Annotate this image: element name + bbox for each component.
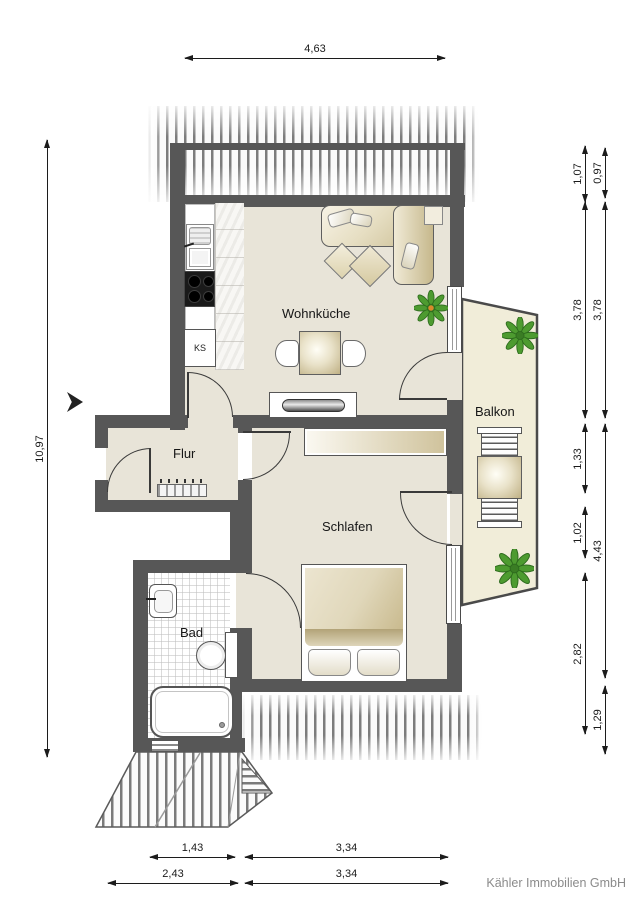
balcony-window-wohnkueche (447, 286, 462, 353)
dining-chair-left (275, 340, 299, 367)
roof-hatch-bottom-left (90, 745, 290, 835)
wall-segment (133, 560, 148, 752)
wohnkueche-balcony-door-leaf (399, 398, 447, 400)
dimension-bottom-outer: 2,43 (108, 871, 238, 887)
balcony-table (477, 456, 522, 499)
room-label-flur: Flur (173, 446, 195, 461)
plant-icon (414, 290, 448, 326)
room-label-bad: Bad (180, 625, 203, 640)
wardrobe (304, 428, 447, 456)
floor-plan: KS Wohnküche Flur Balkon Schlafen Bad (0, 0, 636, 900)
dimension-right-outer: 0,97 (598, 148, 614, 198)
dimension-left: 10,97 (40, 140, 56, 757)
stove-burner (203, 276, 214, 287)
stove-burner (203, 291, 214, 302)
room-label-schlafen: Schlafen (322, 519, 373, 534)
kitchen-tile-strip (215, 203, 244, 370)
balcony-window-schlafen (446, 545, 461, 624)
dimension-bottom-inner: 3,34 (245, 845, 448, 861)
wall-segment (170, 143, 465, 150)
flur-wohnkueche-door-leaf (187, 372, 189, 418)
bed-duvet (305, 568, 403, 629)
dimension-right-outer: 4,43 (598, 424, 614, 678)
entrance-arrow-icon (67, 392, 83, 412)
dining-table (299, 331, 341, 375)
company-name: Kähler Immobilien GmbH (460, 876, 626, 890)
dimension-bottom-inner: 1,43 (150, 845, 235, 861)
toilet-cistern (225, 632, 238, 678)
bed-duvet-fold (305, 629, 403, 646)
dimension-right-outer: 1,29 (598, 686, 614, 754)
flur-radiator-ticks (160, 479, 204, 483)
washbasin-tap (146, 598, 156, 600)
dimension-right-inner: 1,33 (578, 424, 594, 493)
entrance-door-leaf (149, 448, 151, 493)
shower-tub (150, 686, 234, 738)
plant-icon (495, 549, 534, 588)
fridge-label: KS (185, 343, 215, 353)
wall-segment (447, 624, 462, 682)
dimension-right-outer: 3,78 (598, 202, 614, 418)
balcony-doorway-patch-1 (450, 353, 462, 400)
wall-segment (95, 415, 108, 448)
dimension-bottom-outer: 3,34 (245, 871, 448, 887)
corner-side-table (424, 206, 443, 225)
dimension-top: 4,63 (185, 46, 445, 62)
plant-icon (502, 317, 538, 354)
room-label-balkon: Balkon (475, 404, 515, 419)
flur-schlafen-door-leaf (243, 431, 291, 433)
wall-segment (95, 500, 245, 512)
bed-pillow (308, 649, 351, 676)
room-label-wohnkueche: Wohnküche (282, 306, 350, 321)
wall-segment (95, 415, 188, 428)
roof-hatch-top (148, 106, 480, 202)
shower-drain (219, 722, 225, 728)
balcony-chair-bottom (481, 498, 518, 522)
bed-pillow (357, 649, 400, 676)
fridge: KS (184, 329, 216, 367)
wall-segment (133, 738, 245, 752)
flur-radiator (157, 484, 207, 497)
wall-segment (133, 560, 245, 573)
sink-basin (189, 248, 211, 267)
washbasin-inner (154, 590, 173, 613)
wall-segment (170, 143, 185, 430)
balcony-chair-back-bottom (477, 521, 522, 528)
stove-burner (188, 290, 201, 303)
wall-segment (450, 143, 464, 287)
stove-burner (188, 275, 201, 288)
tv-device (282, 399, 345, 412)
wall-segment (447, 419, 462, 494)
toilet-bowl (196, 641, 226, 670)
balcony-chair-top (481, 433, 518, 457)
schlafen-balcony-door-leaf (400, 491, 452, 493)
dining-chair-right (342, 340, 366, 367)
bad-radiator (151, 740, 179, 752)
